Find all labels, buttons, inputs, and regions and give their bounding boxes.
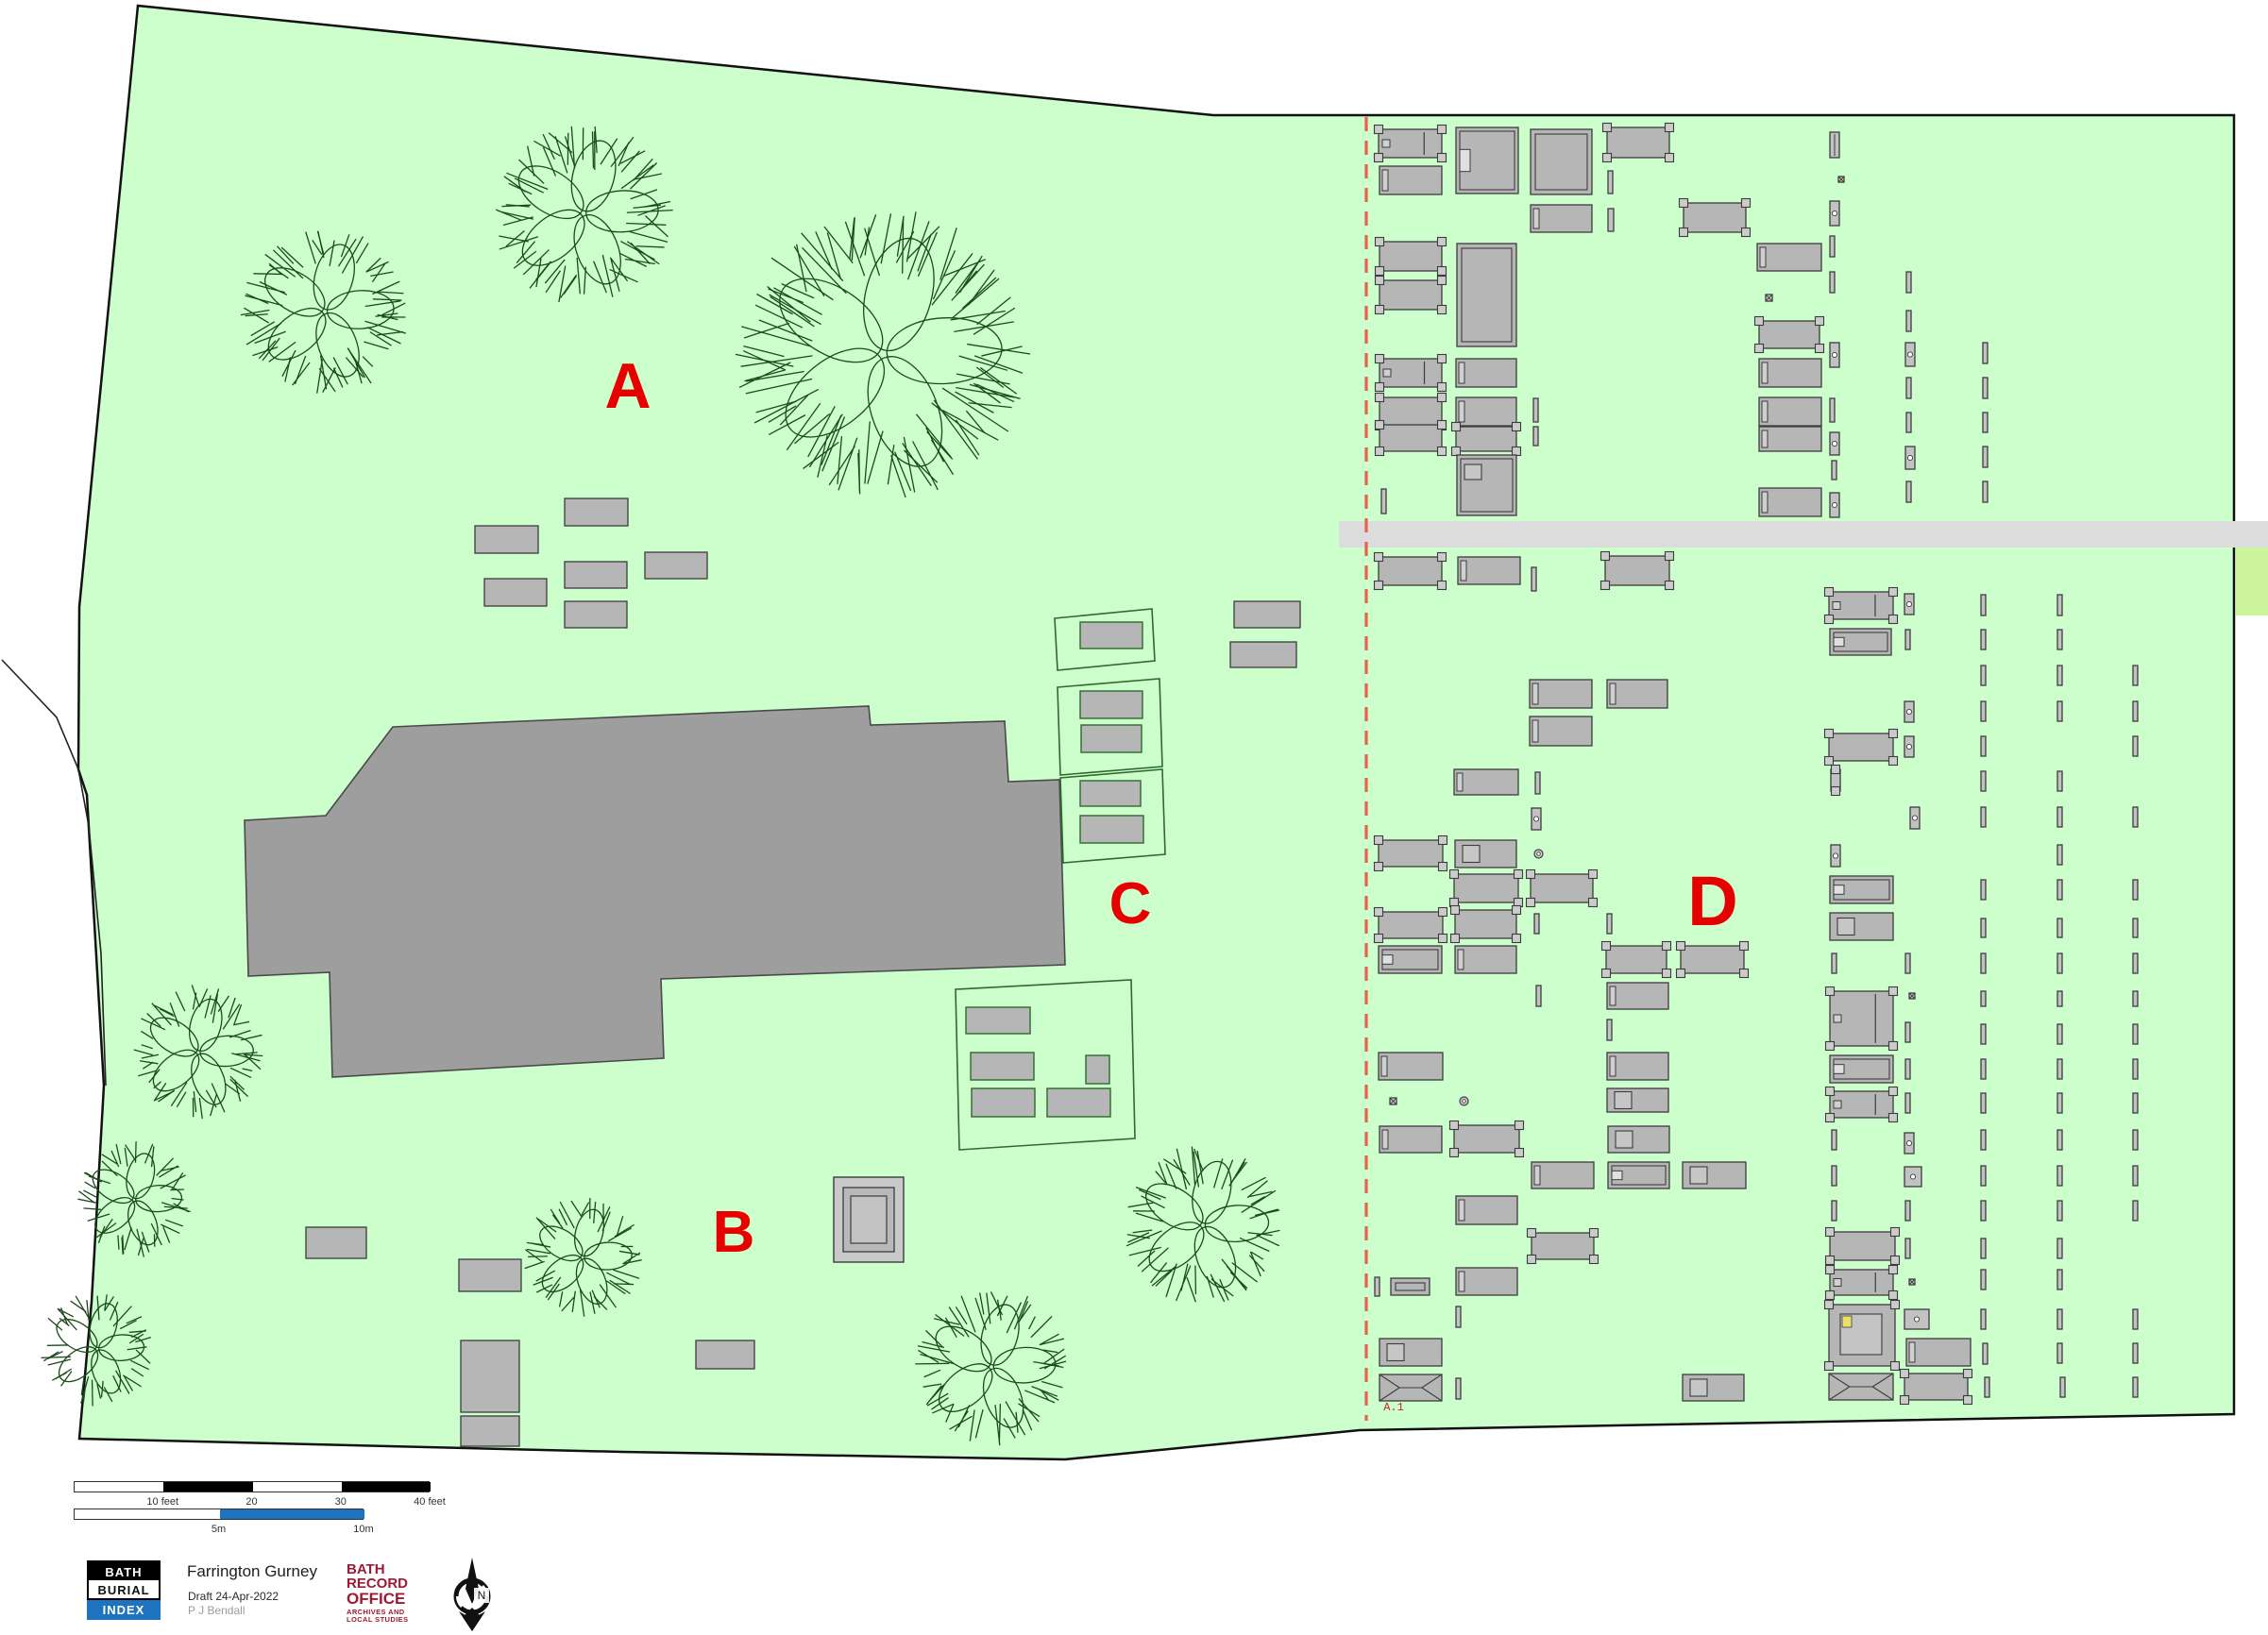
marker-circle — [1533, 817, 1538, 821]
grave — [1533, 398, 1538, 422]
kerb-post — [1601, 582, 1610, 590]
grave — [1532, 808, 1541, 830]
grave-body — [1830, 236, 1835, 257]
grave — [1830, 493, 1839, 517]
marker-circle — [1832, 441, 1836, 446]
grave — [1607, 1088, 1668, 1112]
kerb-post — [1602, 942, 1611, 951]
grave — [1234, 601, 1300, 628]
grave-body — [2133, 1343, 2138, 1363]
grave — [2133, 1377, 2138, 1397]
kerb-post — [1755, 345, 1764, 353]
headstone — [1381, 1056, 1387, 1076]
grave — [1981, 953, 1986, 973]
grave-body — [2057, 1270, 2062, 1289]
grave — [2057, 1059, 2062, 1079]
kerb-post — [1755, 317, 1764, 326]
kerb-post — [1666, 582, 1674, 590]
grave — [1904, 1167, 1921, 1187]
grave-body — [2133, 701, 2138, 721]
grave — [2057, 845, 2062, 865]
grave — [1603, 124, 1674, 162]
headstone — [1610, 683, 1616, 704]
grave-body — [1608, 209, 1614, 231]
grave — [2057, 771, 2062, 791]
grave — [1905, 1022, 1910, 1042]
marker-circle — [1907, 352, 1912, 357]
marker-square — [1834, 1279, 1841, 1287]
grave — [1047, 1088, 1110, 1117]
grave-body — [1981, 595, 1986, 615]
grave — [1983, 447, 1988, 467]
kerb-post — [1376, 383, 1384, 392]
grave — [1981, 1024, 1986, 1044]
grave — [1535, 772, 1540, 794]
grave — [1825, 588, 1898, 624]
grave-body — [1981, 1239, 1986, 1258]
tree-branch — [253, 274, 281, 275]
grave-body — [1379, 425, 1442, 451]
grave-body — [2057, 595, 2062, 615]
grave-body — [1983, 1343, 1988, 1364]
grave-body — [2133, 1201, 2138, 1221]
grave — [1677, 942, 1749, 978]
scale-segment — [220, 1509, 365, 1519]
grave — [1451, 906, 1521, 943]
grave — [1375, 126, 1447, 162]
kerb-post — [1376, 238, 1384, 246]
kerb-post — [1825, 1362, 1834, 1371]
grave — [1981, 1166, 1986, 1186]
grave-body — [1379, 840, 1443, 867]
grave — [1901, 1370, 1972, 1405]
grave-body — [1832, 953, 1836, 973]
grave-body — [1530, 680, 1592, 708]
grave-body — [2133, 1309, 2138, 1329]
grave — [1452, 423, 1521, 456]
kerb-post — [1439, 836, 1447, 845]
scale-bar-feet — [74, 1481, 430, 1492]
grave-body — [1759, 397, 1821, 426]
grave-body — [1531, 205, 1592, 232]
bbi-logo-line-index: INDEX — [87, 1600, 161, 1620]
grave — [1909, 993, 1915, 999]
grave — [1456, 359, 1516, 387]
kerb-post — [1527, 870, 1535, 879]
marker-circle-inner — [1463, 1100, 1466, 1104]
grave — [1905, 1059, 1910, 1079]
inner-square — [1463, 846, 1480, 863]
kerb-post — [1439, 935, 1447, 943]
grave-body — [1981, 953, 1986, 973]
grave — [2133, 1201, 2138, 1221]
grave-body — [461, 1416, 519, 1446]
grave-body — [1906, 413, 1911, 432]
grave-body — [2133, 919, 2138, 937]
grave — [1456, 1306, 1461, 1327]
grave-body — [1906, 311, 1911, 331]
grave-body — [2057, 771, 2062, 791]
kerb-post — [1589, 870, 1598, 879]
grave — [1830, 132, 1839, 158]
plot-id-label: A.1 — [1383, 1401, 1404, 1414]
kerb-post — [1825, 730, 1834, 738]
scale-bar-metres — [74, 1509, 364, 1520]
grave — [1375, 1277, 1379, 1296]
grave — [1832, 461, 1836, 480]
grave — [966, 1007, 1030, 1034]
plan-draft-date: Draft 24-Apr-2022 — [188, 1590, 279, 1603]
grave — [2057, 701, 2062, 721]
grave-body — [1230, 642, 1296, 667]
kerb-post — [1826, 1114, 1835, 1122]
grave — [1909, 1279, 1915, 1285]
grave-body — [1905, 1201, 1910, 1221]
kerb-post — [1515, 870, 1523, 879]
bro-line-local: LOCAL STUDIES — [347, 1616, 408, 1624]
grave — [1981, 1201, 1986, 1221]
grave-body — [1532, 567, 1536, 591]
grave — [1379, 946, 1442, 973]
grave — [1981, 701, 1986, 721]
kerb-post — [1376, 306, 1384, 314]
grave — [1981, 807, 1986, 827]
kerb-post — [1452, 447, 1461, 456]
grave-body — [1381, 489, 1386, 514]
grave-body — [1981, 771, 1986, 791]
grave — [2057, 919, 2062, 937]
kerb-post — [1901, 1396, 1909, 1405]
grave — [1983, 343, 1988, 363]
grave — [1536, 986, 1541, 1006]
tree-branch — [915, 1363, 949, 1364]
grave — [1086, 1055, 1109, 1084]
grave — [1379, 1339, 1442, 1366]
kerb-post — [1663, 942, 1671, 951]
marker-square — [1833, 602, 1840, 610]
kerb-post — [1826, 1256, 1835, 1265]
kerb-post — [1515, 1121, 1524, 1130]
kerb-post — [1438, 355, 1447, 363]
grave — [1981, 771, 1986, 791]
grave-body — [2057, 845, 2062, 865]
grave — [1759, 427, 1821, 451]
grave-body — [1455, 910, 1516, 938]
bath-record-office-logo: BATH RECORD OFFICE ARCHIVES AND LOCAL ST… — [347, 1562, 408, 1623]
grave — [1830, 1055, 1893, 1083]
grave — [1830, 272, 1835, 293]
grave — [1832, 953, 1836, 973]
kerb-post — [1376, 421, 1384, 430]
grave — [1528, 1229, 1599, 1264]
grave — [2057, 595, 2062, 615]
grave-body — [2057, 1343, 2062, 1363]
grave — [1981, 1309, 1986, 1329]
grave — [1683, 1374, 1744, 1401]
grave-body — [2057, 701, 2062, 721]
grave-body — [645, 552, 707, 579]
grave — [1838, 177, 1844, 182]
scale-label: 30 — [335, 1496, 347, 1508]
grave-body — [1981, 1309, 1986, 1329]
grave — [1534, 850, 1543, 858]
grave-body — [2133, 1093, 2138, 1113]
grave-body — [1981, 1201, 1986, 1221]
grave-body — [2057, 666, 2062, 685]
grave — [1602, 942, 1671, 978]
grave — [1759, 359, 1821, 387]
grave-body — [475, 526, 538, 553]
grave — [2057, 630, 2062, 649]
inner-square — [1464, 464, 1481, 480]
grave — [2057, 880, 2062, 900]
grave-body — [2057, 1024, 2062, 1044]
grave-body — [1681, 946, 1744, 973]
grave — [1904, 1133, 1914, 1154]
grave — [2133, 1130, 2138, 1150]
kerb-post — [1590, 1229, 1599, 1238]
headstone — [1533, 209, 1539, 228]
kerb-post — [1889, 1114, 1898, 1122]
grave-body — [1981, 1024, 1986, 1044]
grave — [1830, 629, 1891, 655]
kerb-post — [1438, 553, 1447, 562]
grave — [2057, 1343, 2062, 1363]
grave-body — [1983, 413, 1988, 432]
kerb-post — [1515, 1149, 1524, 1157]
grave — [1981, 919, 1986, 937]
scale-label: 20 — [245, 1496, 257, 1508]
roadside-verge — [2236, 548, 2268, 615]
grave — [971, 1053, 1034, 1080]
kerb-post — [1901, 1370, 1909, 1378]
grave — [1607, 1020, 1612, 1040]
burial-plan-page: ABCDA.1 BATH BURIAL INDEX Farrington Gur… — [0, 0, 2268, 1635]
grave — [1530, 680, 1592, 708]
grave — [1981, 595, 1986, 615]
marker-square — [1383, 369, 1391, 377]
kerb-post — [1891, 1228, 1900, 1237]
grave-body — [2133, 1059, 2138, 1079]
kerb-post — [1816, 317, 1824, 326]
grave-body — [1759, 321, 1819, 348]
grave — [1831, 845, 1840, 867]
grave-body — [1981, 630, 1986, 649]
grave-body — [1608, 171, 1613, 194]
grave-body — [1379, 557, 1442, 585]
grave — [1906, 1339, 1971, 1366]
grave — [645, 552, 707, 579]
grave — [1904, 594, 1914, 615]
grave-body — [1981, 807, 1986, 827]
grave-body — [1981, 919, 1986, 937]
grave — [2133, 1093, 2138, 1113]
grave-body — [2057, 991, 2062, 1006]
churchyard-map: ABCDA.1 — [0, 0, 2268, 1635]
grave-body — [1906, 481, 1911, 502]
kerb-post — [1439, 863, 1447, 871]
kerb-post — [1513, 423, 1521, 431]
grave-body — [1904, 1374, 1968, 1400]
grave — [1376, 421, 1447, 456]
grave-body — [1981, 666, 1986, 685]
headstone — [1610, 1056, 1616, 1076]
grave — [459, 1259, 521, 1291]
grave — [1455, 840, 1516, 868]
grave-body — [1905, 1022, 1910, 1042]
grave — [1527, 870, 1598, 907]
grave — [1832, 1201, 1836, 1221]
kerb-post — [1889, 588, 1898, 597]
grave — [2057, 1201, 2062, 1221]
grave — [1391, 1278, 1430, 1295]
headstone — [1458, 950, 1464, 969]
tree-branch — [48, 1318, 62, 1330]
grave — [1376, 355, 1447, 392]
grave-body — [1985, 1377, 1989, 1397]
grave — [2060, 1377, 2065, 1397]
kerb-post — [1450, 870, 1459, 879]
grave-body — [2133, 736, 2138, 756]
marker-circle — [1833, 853, 1837, 858]
grave — [1456, 1378, 1461, 1399]
grave-body — [1981, 1130, 1986, 1150]
grave — [1983, 1343, 1988, 1364]
inner-square — [1387, 1344, 1404, 1361]
grave — [1826, 987, 1898, 1051]
grave-body — [1983, 447, 1988, 467]
kerb-post — [1375, 553, 1383, 562]
grave — [1905, 953, 1910, 973]
kerb-post — [1513, 935, 1521, 943]
kerb-post — [1832, 787, 1840, 796]
kerb-post — [1680, 199, 1688, 208]
grave-body — [1535, 772, 1540, 794]
grave-body — [1606, 946, 1667, 973]
grave — [1607, 680, 1667, 708]
grave — [484, 579, 547, 606]
kerb-post — [1438, 421, 1447, 430]
grave — [1983, 481, 1988, 502]
kerb-post — [1452, 423, 1461, 431]
grave-body — [2057, 630, 2062, 649]
grave-body — [459, 1259, 521, 1291]
grave — [1081, 725, 1142, 752]
grave — [1829, 1374, 1893, 1400]
kerb-post — [1740, 942, 1749, 951]
grave — [1981, 1093, 1986, 1113]
grave-body — [565, 498, 628, 526]
tree-branch — [48, 1359, 71, 1365]
grave-body — [696, 1340, 754, 1369]
grave — [2133, 807, 2138, 827]
grave — [696, 1340, 754, 1369]
kerb-post — [1438, 447, 1447, 456]
grave-body — [1981, 1093, 1986, 1113]
grave — [1981, 736, 1986, 756]
kerb-post — [1451, 906, 1460, 915]
grave — [1905, 1239, 1910, 1258]
yellow-marker — [1842, 1316, 1852, 1327]
grave — [1533, 427, 1538, 446]
grave — [1825, 1301, 1900, 1371]
grave-body — [1830, 272, 1835, 293]
left-notch — [1460, 149, 1470, 171]
grave — [2057, 666, 2062, 685]
grave — [2133, 919, 2138, 937]
grave-body — [1456, 1196, 1517, 1224]
headstone — [1762, 492, 1768, 513]
grave-body — [1379, 912, 1443, 938]
kerb-post — [1438, 394, 1447, 402]
grave-body — [2133, 953, 2138, 973]
section-label-a: A — [604, 350, 651, 422]
grave-body — [1455, 946, 1516, 973]
grave — [1080, 781, 1141, 806]
headstone — [1459, 1272, 1464, 1291]
kerb-post — [1816, 345, 1824, 353]
scale-segment — [75, 1482, 163, 1492]
grave — [1379, 1374, 1442, 1401]
tree-branch — [58, 1308, 74, 1317]
grave-body — [1456, 1306, 1461, 1327]
grave — [1379, 1126, 1442, 1153]
grave — [1457, 244, 1516, 346]
grave-body — [1456, 359, 1516, 387]
grave — [475, 526, 538, 553]
headstone — [1762, 362, 1768, 383]
grave — [1454, 769, 1518, 795]
grave-body — [2057, 1309, 2062, 1329]
grave — [1379, 1053, 1443, 1080]
kerb-post — [1376, 394, 1384, 402]
grave-body — [1379, 242, 1442, 271]
kerb-post — [1438, 154, 1447, 162]
kerb-post — [1964, 1396, 1972, 1405]
kerb-post — [1889, 757, 1898, 766]
grave — [1766, 295, 1772, 301]
kerb-post — [1742, 228, 1751, 237]
kerb-post — [1826, 987, 1835, 996]
tree-branch — [43, 1352, 59, 1361]
plan-author: P J Bendall — [188, 1604, 245, 1617]
grave — [1832, 1130, 1836, 1150]
grave-body — [1759, 427, 1821, 451]
grave-body — [2133, 1130, 2138, 1150]
grave-body — [1607, 1053, 1668, 1080]
scale-segment — [75, 1509, 220, 1519]
kerb-post — [1376, 277, 1384, 285]
grave-body — [2057, 1130, 2062, 1150]
grave-body — [1830, 1232, 1895, 1260]
grave-body — [2060, 1377, 2065, 1397]
grave-body — [461, 1340, 519, 1412]
kerb-post — [1438, 126, 1447, 134]
left-notch — [1834, 885, 1844, 895]
grave — [2133, 1166, 2138, 1186]
grave — [1983, 413, 1988, 432]
grave-body — [1234, 601, 1300, 628]
grave — [1375, 553, 1447, 590]
grave-body — [1456, 397, 1516, 426]
grave-body — [1607, 914, 1612, 934]
grave — [1450, 1121, 1524, 1157]
grave-body — [1981, 1059, 1986, 1079]
scale-label: 5m — [212, 1524, 226, 1535]
kerb-post — [1375, 154, 1383, 162]
kerb-post — [1740, 969, 1749, 978]
grave-body — [1375, 1277, 1379, 1296]
